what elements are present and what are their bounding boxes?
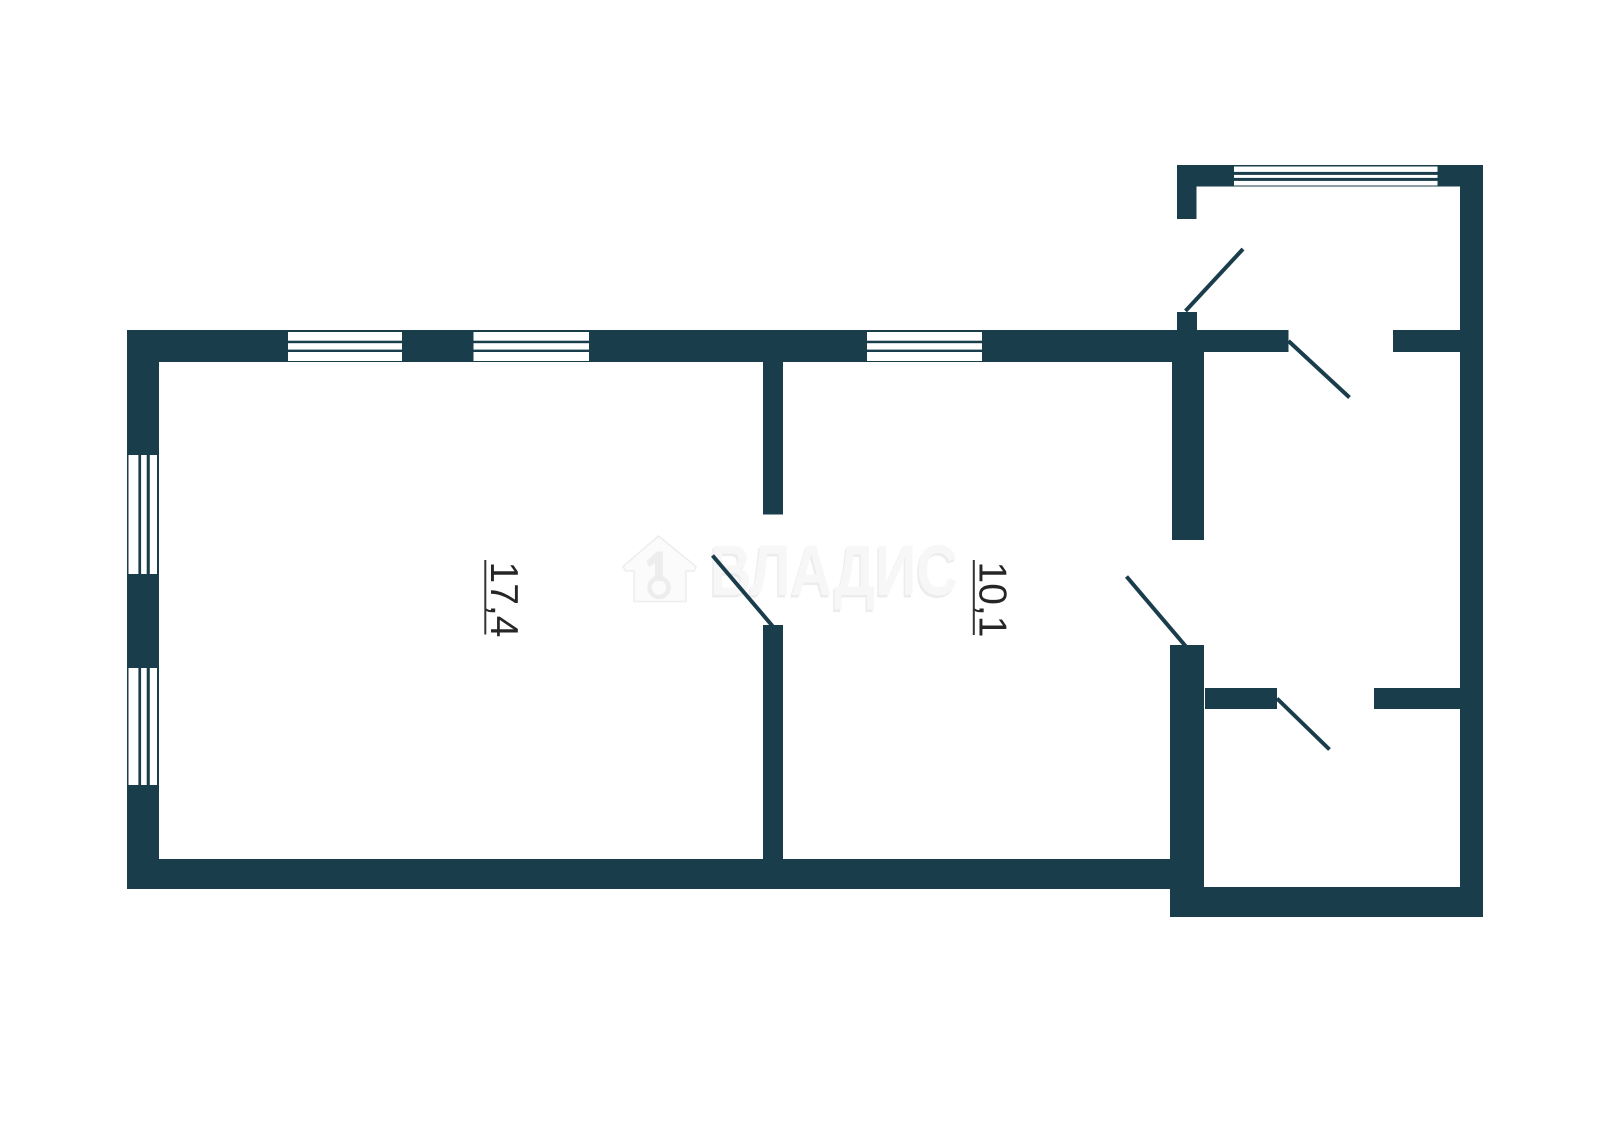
svg-text:10,1: 10,1 [971, 562, 1014, 638]
svg-text:17,4: 17,4 [482, 562, 525, 638]
